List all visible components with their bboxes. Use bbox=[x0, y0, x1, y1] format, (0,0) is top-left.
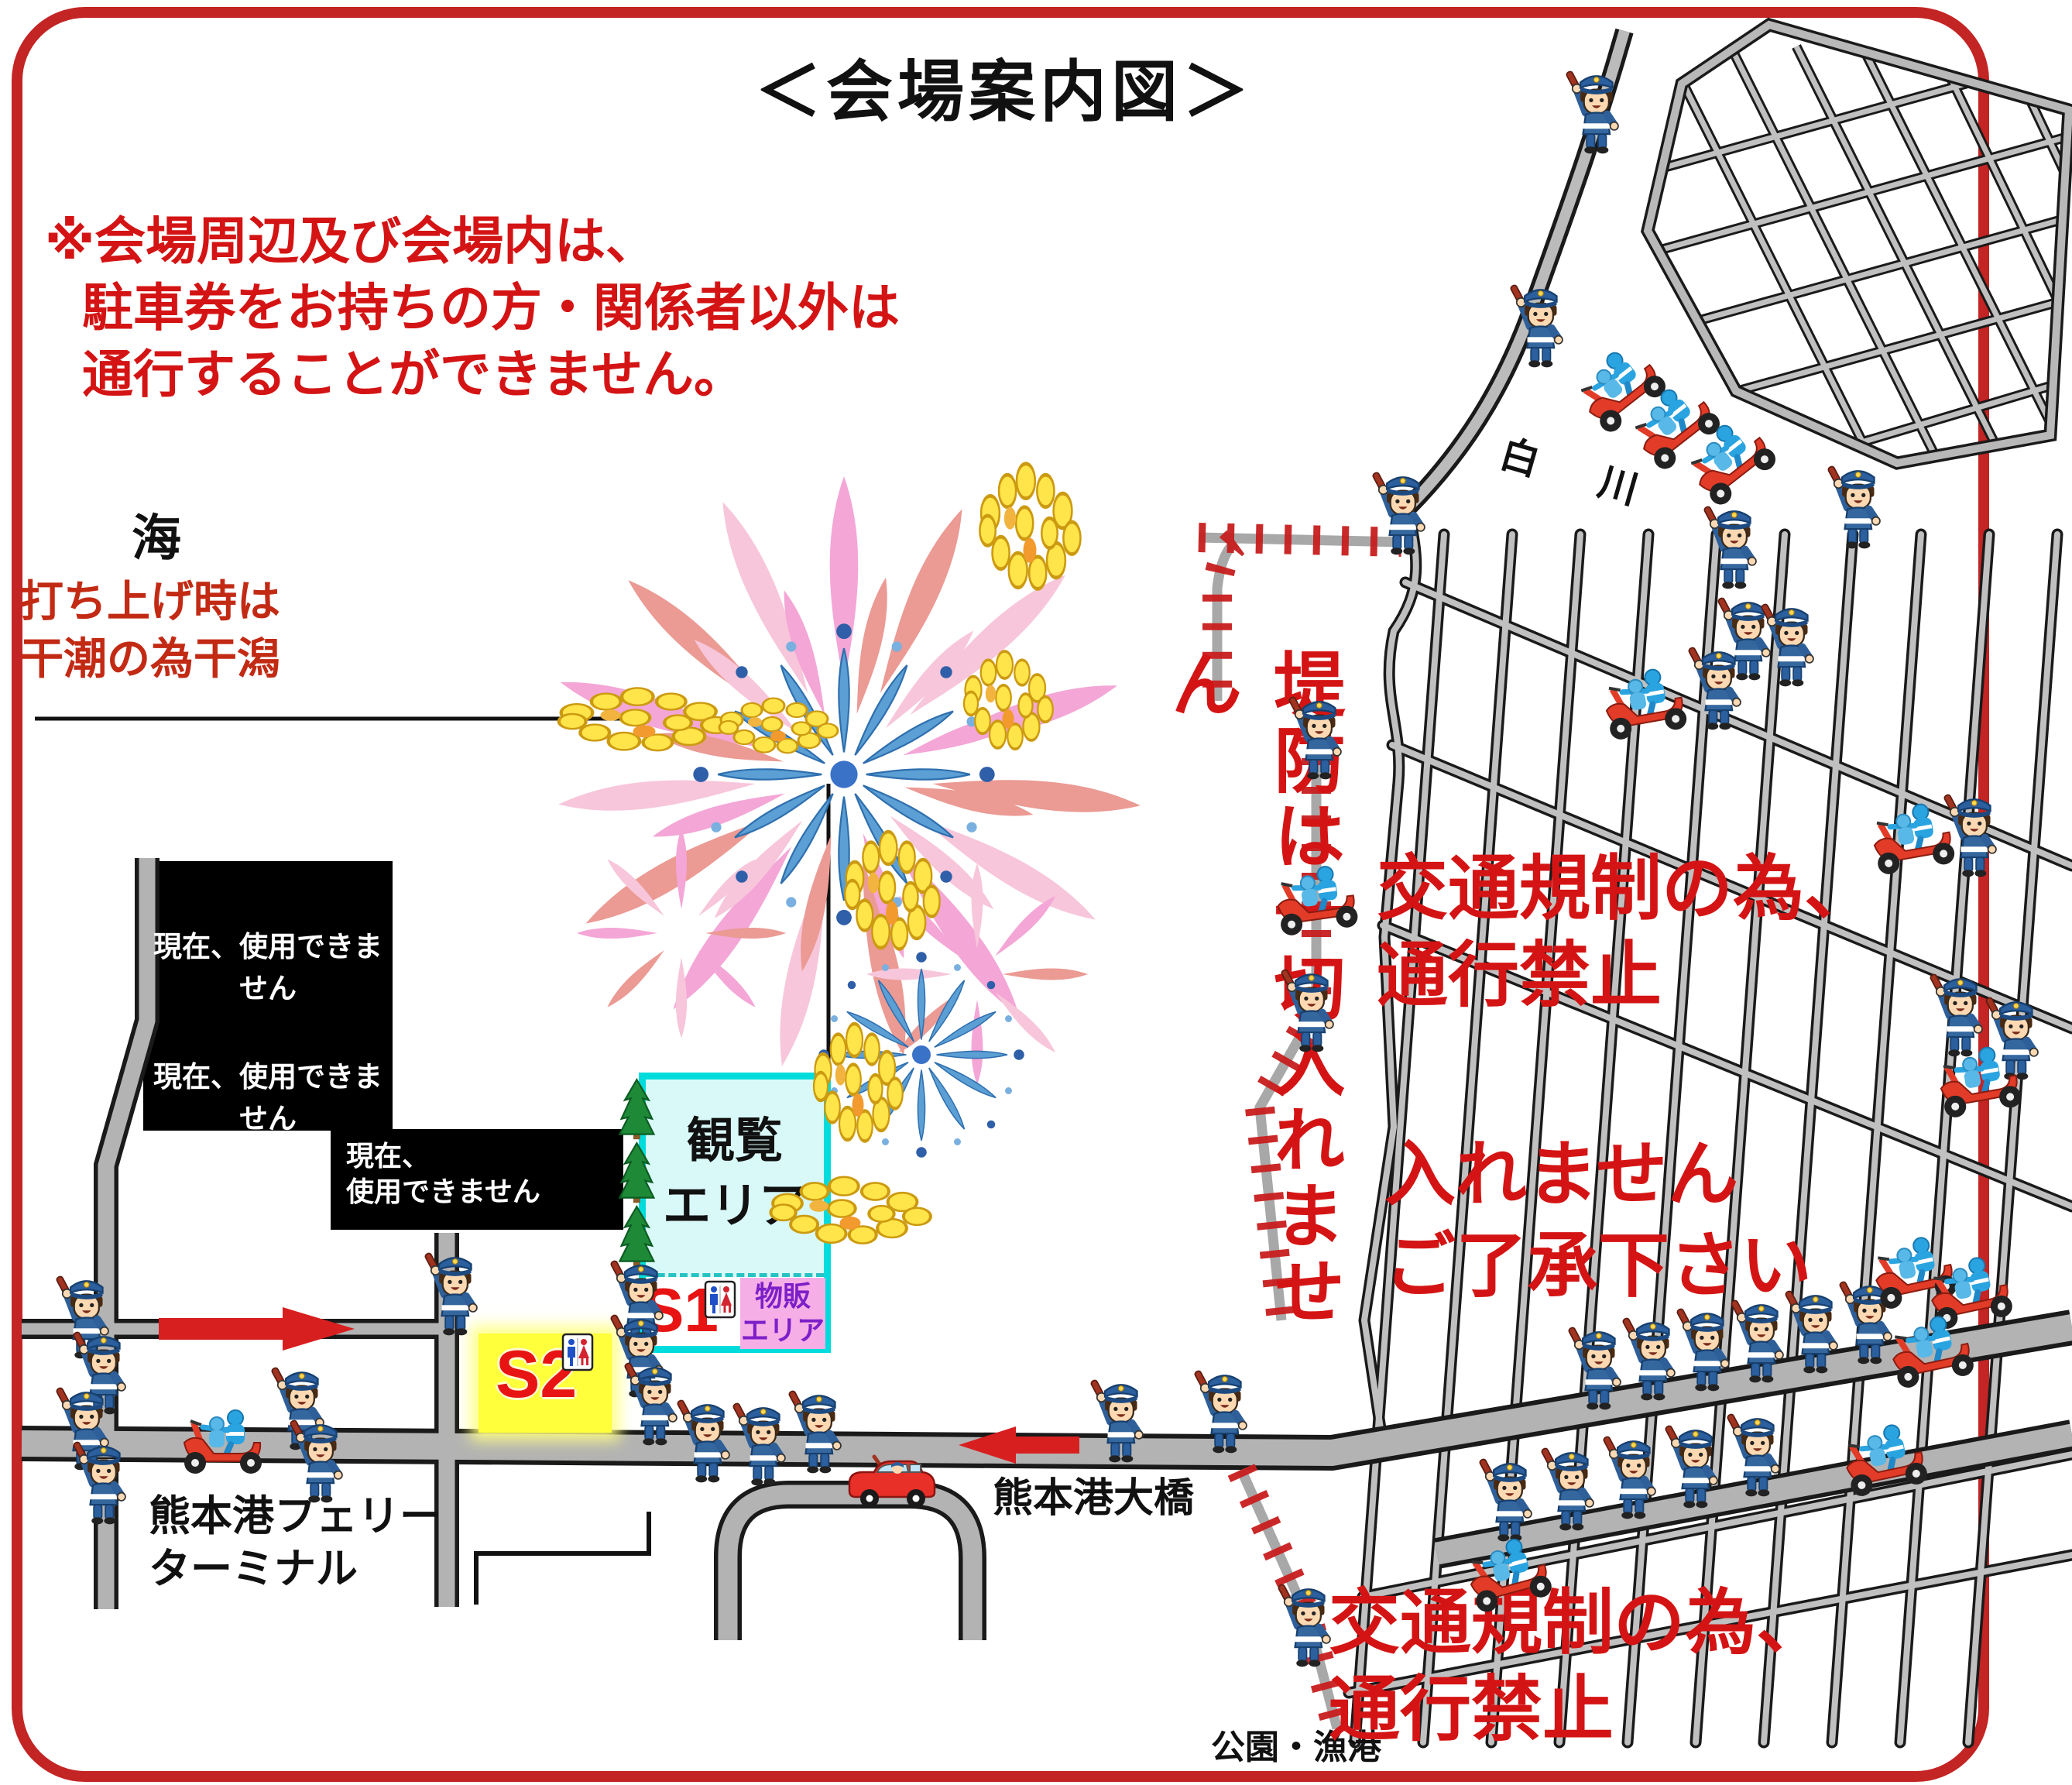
no-entry-notice-line2: ご了承下さい bbox=[1384, 1220, 1812, 1312]
closed-area-label-1: 現在、使用できません bbox=[143, 923, 393, 1007]
sea-label: 海 bbox=[132, 499, 181, 570]
closed-area-label-2: 現在、使用できません bbox=[143, 1053, 393, 1137]
goods-area-label-line1: 物販 bbox=[740, 1279, 825, 1313]
sea-note-line2: 干潮の為干潟 bbox=[20, 630, 280, 688]
venue-guide-map: 物販 エリア ＜会場案内図＞ ※会場周辺及び会場内は、 駐車券をお持ちの方・関係… bbox=[0, 0, 2072, 1785]
bridge-label: 熊本港大橋 bbox=[993, 1465, 1194, 1523]
pier-line bbox=[476, 1512, 649, 1605]
s2-parking-label: S2 bbox=[496, 1337, 577, 1413]
embankment-warning: 堤防は一切入れません bbox=[1149, 647, 1355, 1360]
entry-notice-line2: 駐車券をお持ちの方・関係者以外は bbox=[45, 274, 900, 341]
traffic-restriction-2-line1: 交通規制の為、 bbox=[1329, 1580, 1827, 1667]
viewing-area-label: 観覧 エリア bbox=[639, 1109, 831, 1239]
viewing-area-label-line2: エリア bbox=[639, 1174, 831, 1239]
goods-area-label-line2: エリア bbox=[740, 1313, 825, 1347]
traffic-restriction-1: 交通規制の為、 通行禁止 bbox=[1377, 846, 1875, 1019]
arrow-right-icon bbox=[159, 1307, 355, 1351]
viewing-area-label-line1: 観覧 bbox=[639, 1109, 831, 1174]
entry-notice-line3: 通行することができません。 bbox=[45, 341, 900, 407]
goods-area-box: 物販 エリア bbox=[740, 1278, 825, 1349]
closed-area-label-3: 現在、 使用できません bbox=[346, 1138, 540, 1210]
traffic-restriction-2-line2: 通行禁止 bbox=[1329, 1667, 1827, 1753]
page-title: ＜会場案内図＞ bbox=[755, 37, 1254, 134]
closed-area-label-3-line1: 現在、 bbox=[346, 1138, 540, 1174]
sea-note-line1: 打ち上げ時は bbox=[20, 573, 280, 630]
no-entry-notice: 入れません ご了承下さい bbox=[1384, 1129, 1812, 1312]
ferry-terminal-line1: 熊本港フェリー bbox=[149, 1490, 441, 1543]
s1-parking-label: S1 bbox=[643, 1275, 719, 1346]
ferry-terminal-label: 熊本港フェリー ターミナル bbox=[149, 1490, 441, 1595]
traffic-restriction-1-line2: 通行禁止 bbox=[1377, 932, 1875, 1019]
sea-line-dot bbox=[631, 713, 642, 724]
no-entry-notice-line1: 入れません bbox=[1384, 1129, 1812, 1220]
traffic-restriction-2: 交通規制の為、 通行禁止 bbox=[1329, 1580, 1827, 1753]
sea-note: 打ち上げ時は 干潮の為干潟 bbox=[20, 573, 280, 688]
entry-notice-line1: ※会場周辺及び会場内は、 bbox=[45, 208, 900, 274]
entry-notice: ※会場周辺及び会場内は、 駐車券をお持ちの方・関係者以外は 通行することができま… bbox=[45, 208, 900, 407]
closed-area-label-3-line2: 使用できません bbox=[346, 1174, 540, 1210]
ferry-terminal-line2: ターミナル bbox=[149, 1543, 441, 1595]
traffic-restriction-1-line1: 交通規制の為、 bbox=[1377, 846, 1875, 932]
